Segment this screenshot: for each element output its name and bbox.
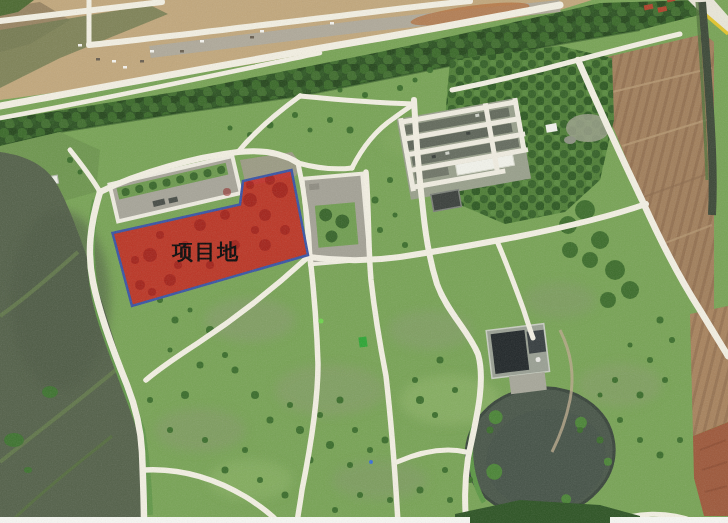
satellite-map-canvas: 项目地 (0, 0, 728, 523)
image-grain-overlay (0, 0, 728, 523)
satellite-map-view[interactable]: 项目地 (0, 0, 728, 523)
